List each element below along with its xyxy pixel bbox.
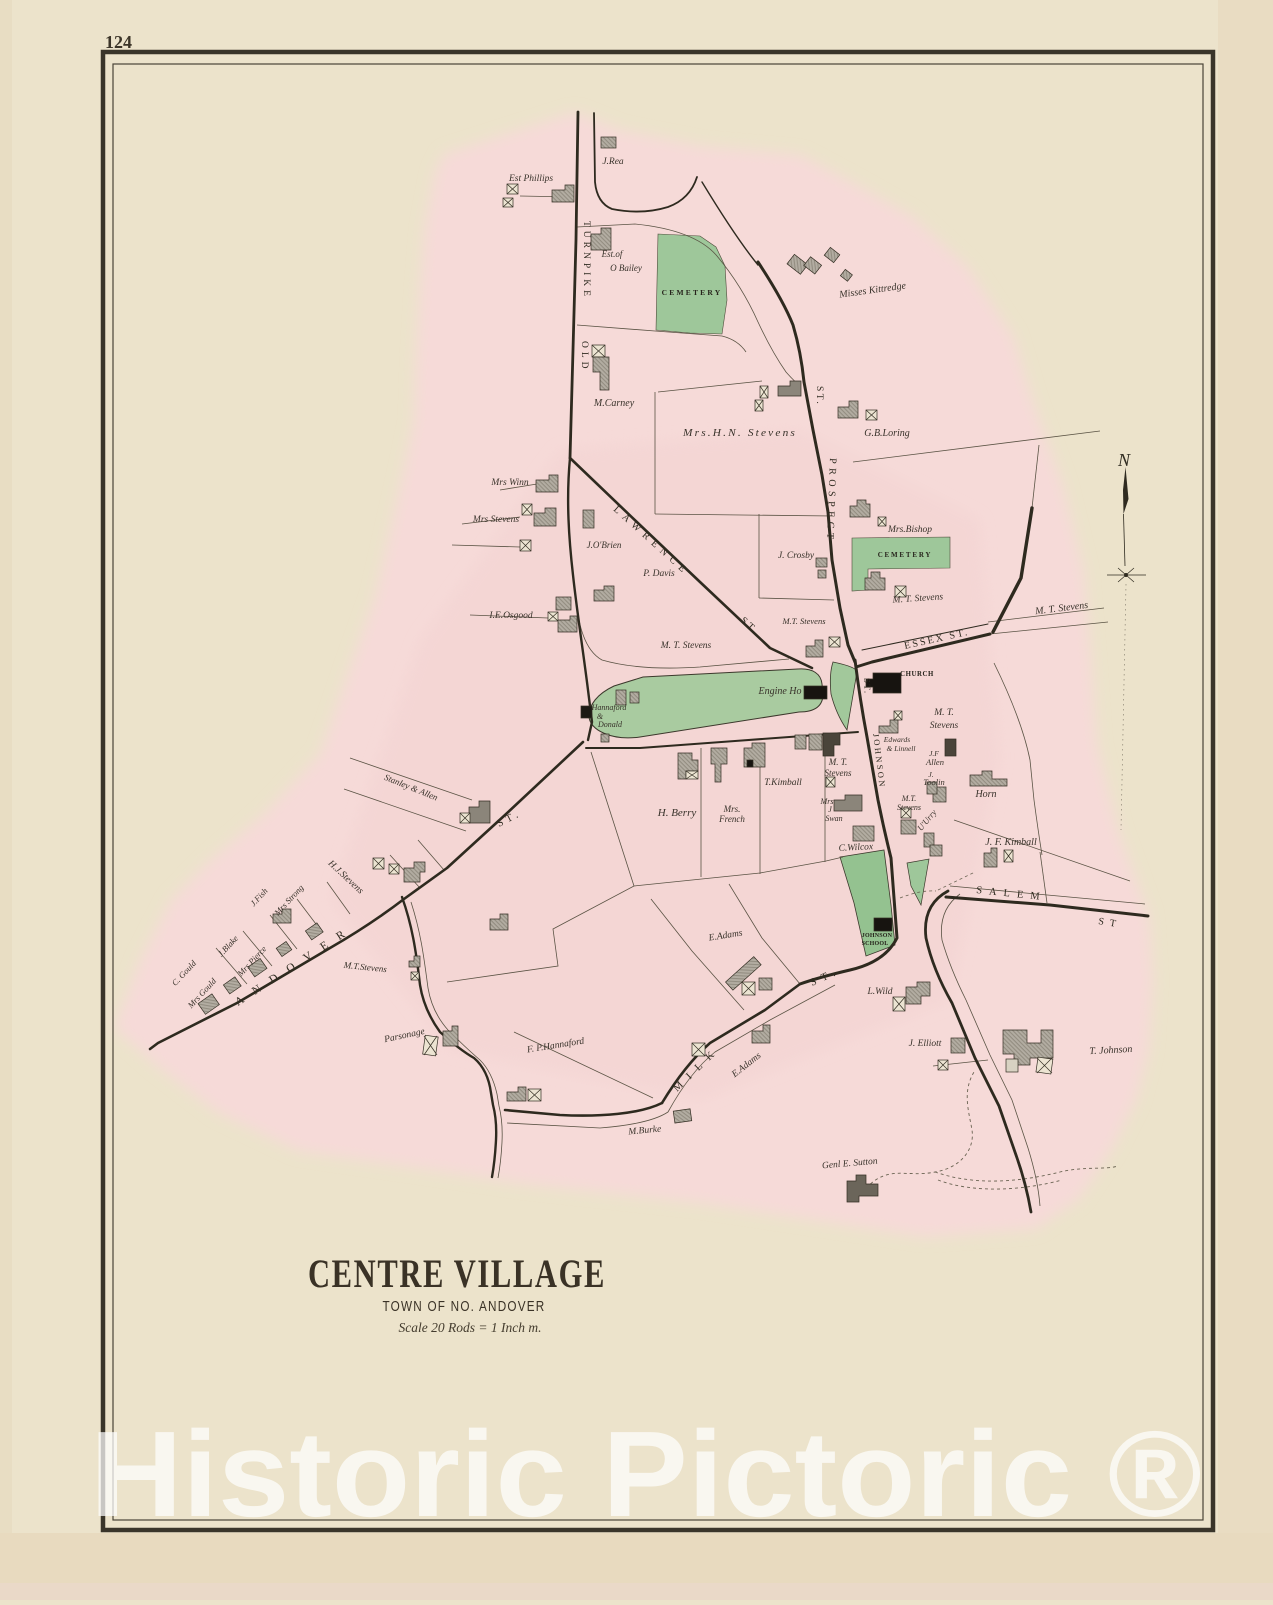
svg-text:Mrs.Bishop: Mrs.Bishop bbox=[887, 525, 932, 535]
svg-text:J.Rea: J.Rea bbox=[602, 157, 624, 167]
svg-text:Edwards: Edwards bbox=[883, 735, 910, 744]
svg-text:J.O'Brien: J.O'Brien bbox=[587, 540, 622, 550]
svg-text:Mrs Winn: Mrs Winn bbox=[490, 478, 528, 488]
svg-text:Mrs Stevens: Mrs Stevens bbox=[472, 515, 519, 525]
svg-text:J. Crosby: J. Crosby bbox=[778, 551, 815, 561]
svg-text:Horn: Horn bbox=[974, 789, 996, 800]
svg-text:Mrs.: Mrs. bbox=[723, 804, 741, 814]
svg-text:M.T. Stevens: M.T. Stevens bbox=[781, 616, 826, 626]
svg-text:CHURCH: CHURCH bbox=[900, 671, 934, 678]
svg-text:Engine Ho: Engine Ho bbox=[757, 686, 801, 697]
svg-text:G.B.Loring: G.B.Loring bbox=[864, 428, 910, 439]
svg-text:M.T.: M.T. bbox=[901, 794, 917, 803]
svg-text:Hannaford: Hannaford bbox=[591, 703, 628, 712]
svg-text:O Bailey: O Bailey bbox=[610, 263, 642, 273]
svg-text:SCHOOL: SCHOOL bbox=[862, 941, 889, 947]
svg-text:Stevens: Stevens bbox=[825, 768, 852, 778]
svg-text:J. F. Kimball: J. F. Kimball bbox=[985, 837, 1037, 848]
svg-text:M. T. Stevens: M. T. Stevens bbox=[660, 641, 712, 651]
svg-text:ST.: ST. bbox=[862, 678, 873, 695]
svg-text:& Linnell: & Linnell bbox=[887, 744, 916, 753]
svg-text:C.Wilcox: C.Wilcox bbox=[838, 842, 874, 854]
svg-text:N: N bbox=[1117, 450, 1131, 470]
svg-text:ST.: ST. bbox=[814, 386, 824, 406]
svg-text:Stevens: Stevens bbox=[897, 803, 921, 812]
svg-text:M. T.: M. T. bbox=[828, 757, 848, 767]
svg-text:Swan: Swan bbox=[825, 814, 842, 823]
svg-text:I.E.Osgood: I.E.Osgood bbox=[488, 611, 533, 621]
svg-text:M.Carney: M.Carney bbox=[593, 398, 635, 409]
svg-text:CEMETERY: CEMETERY bbox=[662, 288, 723, 297]
svg-text:Mrs.H.N. Stevens: Mrs.H.N. Stevens bbox=[682, 428, 797, 439]
svg-text:L.Wild: L.Wild bbox=[866, 987, 892, 997]
svg-text:Scale 20 Rods = 1 Inch m.: Scale 20 Rods = 1 Inch m. bbox=[399, 1320, 542, 1335]
svg-text:M. T.: M. T. bbox=[933, 708, 954, 718]
svg-text:J: J bbox=[828, 805, 832, 814]
svg-text:Stevens: Stevens bbox=[930, 721, 959, 731]
svg-text:T. Johnson: T. Johnson bbox=[1089, 1044, 1133, 1057]
svg-text:CEMETERY: CEMETERY bbox=[878, 551, 933, 559]
svg-text:TURNPIKE: TURNPIKE bbox=[581, 221, 591, 300]
svg-text:Toolin: Toolin bbox=[923, 777, 944, 787]
svg-text:Est.of: Est.of bbox=[601, 249, 624, 259]
svg-text:Est Phillips: Est Phillips bbox=[508, 174, 553, 184]
svg-text:Allen: Allen bbox=[925, 757, 944, 767]
svg-text:Historic Pictoric ®: Historic Pictoric ® bbox=[90, 1406, 1202, 1542]
svg-text:Donald: Donald bbox=[597, 720, 623, 729]
svg-text:CENTRE VILLAGE: CENTRE VILLAGE bbox=[308, 1252, 606, 1296]
svg-text:124: 124 bbox=[105, 32, 132, 52]
svg-text:French: French bbox=[718, 814, 745, 824]
svg-text:J. Elliott: J. Elliott bbox=[909, 1039, 942, 1049]
svg-text:TOWN OF NO. ANDOVER: TOWN OF NO. ANDOVER bbox=[383, 1299, 546, 1315]
svg-text:H. Berry: H. Berry bbox=[657, 807, 697, 819]
svg-text:P. Davis: P. Davis bbox=[642, 569, 675, 579]
svg-text:T.Kimball: T.Kimball bbox=[764, 778, 802, 788]
svg-text:JOHNSON: JOHNSON bbox=[862, 933, 893, 939]
svg-text:OLD: OLD bbox=[579, 341, 589, 373]
